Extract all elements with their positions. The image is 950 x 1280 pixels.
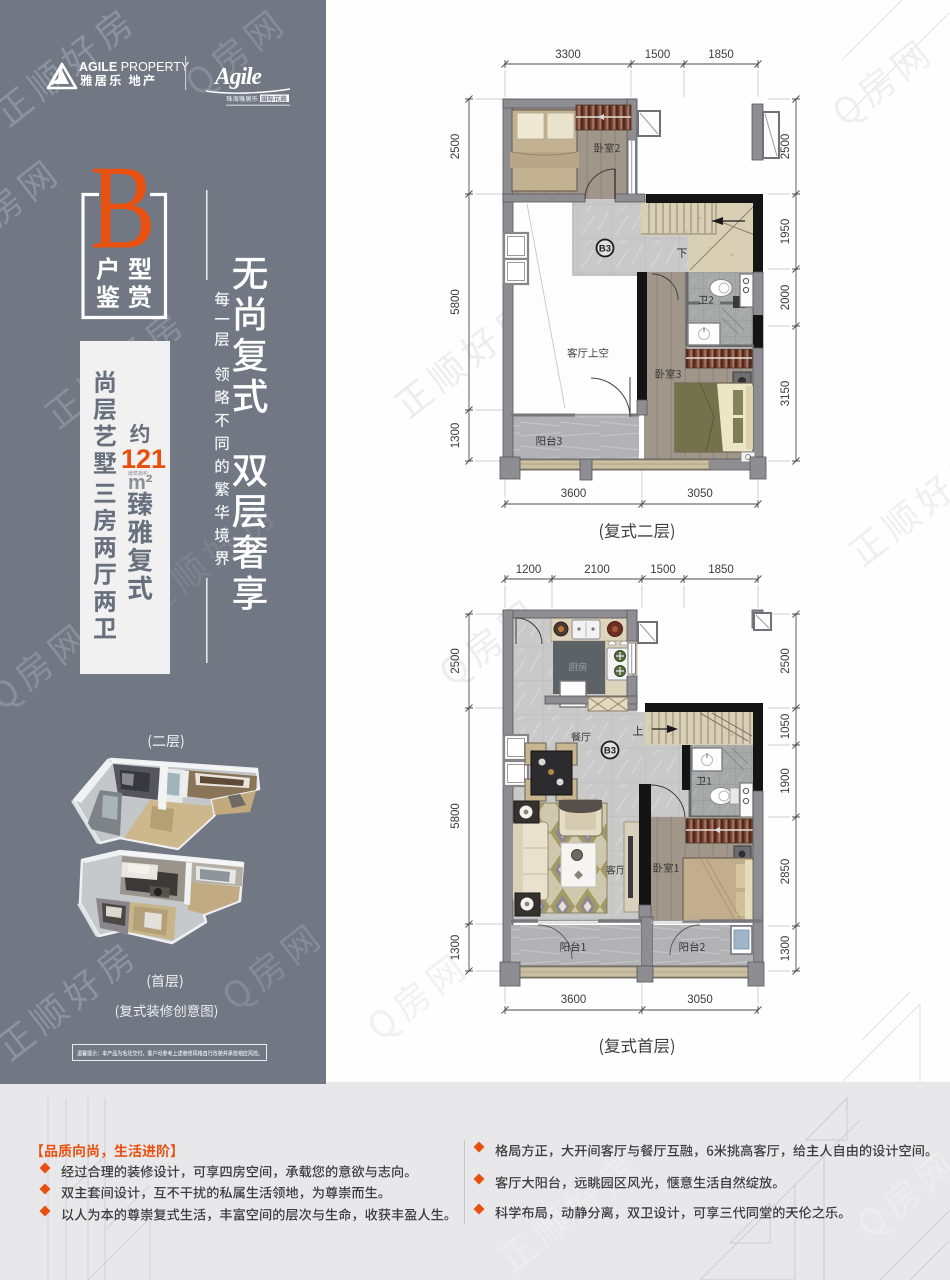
svg-text:B3: B3 bbox=[604, 746, 616, 757]
svg-text:3150: 3150 bbox=[780, 381, 792, 407]
svg-text:2500: 2500 bbox=[780, 134, 792, 160]
svg-text:1500: 1500 bbox=[650, 564, 676, 576]
svg-text:1200: 1200 bbox=[516, 564, 542, 576]
svg-text:1300: 1300 bbox=[450, 935, 462, 961]
svg-text:1300: 1300 bbox=[780, 936, 792, 962]
svg-text:2500: 2500 bbox=[780, 648, 792, 674]
svg-text:B: B bbox=[90, 140, 156, 273]
svg-text:121: 121 bbox=[121, 444, 166, 474]
svg-text:m²: m² bbox=[128, 472, 153, 494]
svg-text:2850: 2850 bbox=[780, 859, 792, 885]
svg-text:1950: 1950 bbox=[780, 219, 792, 245]
svg-text:5800: 5800 bbox=[450, 289, 462, 315]
svg-text:2500: 2500 bbox=[450, 134, 462, 160]
svg-text:1300: 1300 bbox=[450, 423, 462, 449]
svg-text:3300: 3300 bbox=[555, 49, 581, 61]
svg-text:2100: 2100 bbox=[584, 564, 610, 576]
svg-text:2000: 2000 bbox=[780, 285, 792, 311]
svg-text:1900: 1900 bbox=[780, 768, 792, 794]
svg-text:1850: 1850 bbox=[708, 564, 734, 576]
svg-text:1500: 1500 bbox=[645, 49, 671, 61]
svg-text:3050: 3050 bbox=[687, 488, 713, 500]
svg-text:Agile: Agile bbox=[213, 64, 262, 90]
svg-text:AGILEPROPERTY: AGILEPROPERTY bbox=[79, 60, 190, 74]
svg-text:2500: 2500 bbox=[450, 648, 462, 674]
svg-text:3600: 3600 bbox=[561, 488, 587, 500]
svg-text:1050: 1050 bbox=[780, 714, 792, 740]
svg-text:3050: 3050 bbox=[687, 994, 713, 1006]
svg-text:B3: B3 bbox=[599, 244, 611, 255]
svg-text:1850: 1850 bbox=[708, 49, 734, 61]
svg-text:3600: 3600 bbox=[561, 994, 587, 1006]
svg-text:5800: 5800 bbox=[450, 803, 462, 829]
